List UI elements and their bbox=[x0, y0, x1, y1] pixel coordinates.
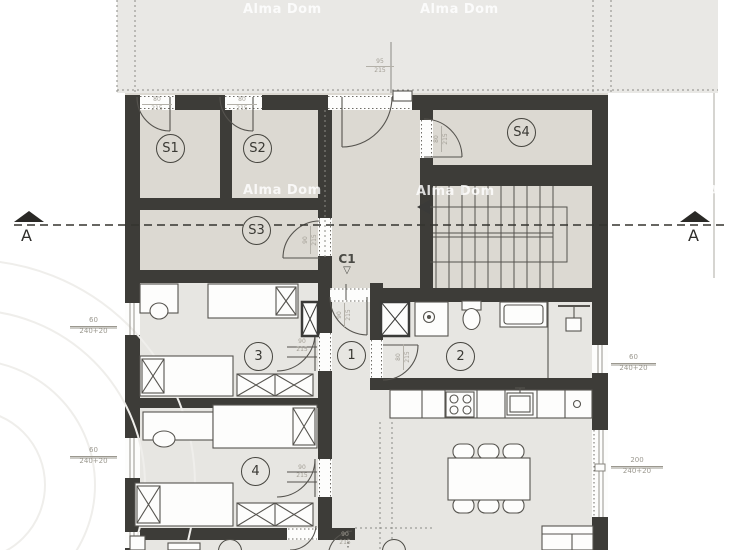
door-swings bbox=[137, 97, 462, 550]
dimension-left-lower: 60 240+20 bbox=[70, 446, 117, 466]
door-label-bottom-height: 215 bbox=[332, 539, 358, 547]
stair-walk-line bbox=[430, 207, 567, 262]
dimension-left-lower-size: 60 bbox=[70, 446, 117, 457]
room-label-1: 1 bbox=[337, 341, 366, 370]
door-label-s4-width: 80 bbox=[433, 126, 442, 152]
shaft-bath bbox=[381, 302, 409, 336]
watermark-mid-right: Alma Dom bbox=[416, 184, 495, 199]
wardrobe-room4 bbox=[237, 503, 313, 526]
desk-room4 bbox=[143, 412, 213, 447]
bathroom-sink bbox=[500, 302, 547, 327]
stove bbox=[446, 392, 474, 417]
room-label-3: 3 bbox=[244, 342, 273, 371]
room-label-2-text: 2 bbox=[456, 349, 464, 364]
dining-table bbox=[448, 458, 530, 500]
door-label-s2-width: 80 bbox=[227, 96, 257, 105]
door-label-room4: 90 215 bbox=[288, 464, 316, 480]
door-label-s4: 80 215 bbox=[433, 126, 450, 152]
section-triangle-left bbox=[14, 211, 44, 222]
door-label-entry: 95 215 bbox=[366, 58, 394, 75]
door-label-room4-height: 215 bbox=[288, 472, 316, 480]
room-label-s3-text: S3 bbox=[248, 223, 265, 238]
door-label-s1: 80 215 bbox=[142, 96, 172, 113]
kitchen-counter bbox=[390, 390, 592, 418]
door-label-bottom-width: 90 bbox=[332, 531, 358, 539]
c1-label: C1 bbox=[338, 252, 355, 266]
room-label-s4-text: S4 bbox=[513, 125, 530, 140]
door-label-s3-height: 215 bbox=[311, 226, 319, 254]
dimension-left-upper-size: 60 bbox=[70, 316, 117, 327]
bed-room4-left bbox=[135, 483, 233, 526]
room-label-s3: S3 bbox=[242, 216, 271, 245]
room-label-s1: S1 bbox=[156, 134, 185, 163]
toilet bbox=[462, 301, 481, 330]
door-label-hall-width: 90 bbox=[336, 303, 345, 327]
room-label-2: 2 bbox=[446, 342, 475, 371]
shaft-left bbox=[302, 302, 318, 336]
door-label-hall-height: 215 bbox=[345, 303, 353, 327]
door-label-room3-height: 215 bbox=[288, 346, 316, 354]
door-label-room3: 90 215 bbox=[288, 338, 316, 354]
furniture bbox=[130, 91, 593, 550]
desk-room3 bbox=[140, 284, 178, 319]
watermark-top-left: Alma Dom bbox=[243, 2, 322, 17]
door-label-bath: 80 215 bbox=[395, 344, 412, 370]
dimension-left-upper: 60 240+20 bbox=[70, 316, 117, 336]
room-label-4: 4 bbox=[241, 457, 270, 486]
stair-direction-arrow bbox=[417, 200, 430, 214]
door-label-bottom: 90 215 bbox=[332, 531, 358, 547]
section-label-right: A bbox=[688, 226, 699, 245]
watermark-edge-right: Alma Dom bbox=[708, 184, 740, 199]
room-label-s1-text: S1 bbox=[162, 141, 179, 156]
door-label-entry-height: 215 bbox=[366, 67, 394, 75]
room-label-s2-text: S2 bbox=[249, 141, 266, 156]
watermark-top-right: Alma Dom bbox=[420, 2, 499, 17]
door-label-s2: 80 215 bbox=[227, 96, 257, 113]
door-label-s1-width: 80 bbox=[142, 96, 172, 105]
door-bottom-1 bbox=[290, 526, 316, 550]
floor-plan-page: S1 S2 S3 S4 1 2 3 4 80 215 80 215 95 215… bbox=[0, 0, 740, 550]
water-heater bbox=[558, 306, 590, 331]
door-label-room3-width: 90 bbox=[288, 338, 316, 346]
door-label-room4-width: 90 bbox=[288, 464, 316, 472]
dimension-right-lower: 200 240+20 bbox=[611, 456, 663, 476]
section-triangle-right bbox=[680, 211, 710, 222]
dimension-left-upper-detail: 240+20 bbox=[70, 327, 117, 336]
point-marker-c1: C1 ▽ bbox=[334, 253, 360, 276]
door-entry bbox=[342, 97, 392, 147]
door-label-bath-height: 215 bbox=[404, 344, 412, 370]
room-label-s4: S4 bbox=[507, 118, 536, 147]
room-label-3-text: 3 bbox=[254, 349, 262, 364]
bed-room3-left bbox=[140, 356, 233, 396]
room-label-1-text: 1 bbox=[347, 348, 355, 363]
watermark-mid-left: Alma Dom bbox=[243, 183, 322, 198]
entry-sidelight bbox=[393, 91, 412, 101]
dimension-right-upper: 60 240+20 bbox=[611, 353, 656, 373]
door-label-hall: 90 215 bbox=[336, 303, 353, 327]
door-label-s1-height: 215 bbox=[142, 105, 172, 113]
wardrobe-room3 bbox=[237, 374, 313, 396]
washing-machine bbox=[415, 302, 448, 336]
sofa bbox=[542, 526, 593, 550]
dimension-right-upper-detail: 240+20 bbox=[611, 364, 656, 373]
door-label-bath-width: 80 bbox=[395, 344, 404, 370]
door-label-s4-height: 215 bbox=[442, 126, 450, 152]
room-label-4-text: 4 bbox=[251, 464, 259, 479]
staircase bbox=[430, 186, 567, 288]
dimension-right-upper-size: 60 bbox=[611, 353, 656, 364]
bed-room4-top bbox=[213, 405, 317, 448]
dimension-right-lower-detail: 240+20 bbox=[611, 467, 663, 476]
dimension-left-lower-detail: 240+20 bbox=[70, 457, 117, 466]
door-label-entry-width: 95 bbox=[366, 58, 394, 67]
room-label-s2: S2 bbox=[243, 134, 272, 163]
door-label-s3: 90 215 bbox=[302, 226, 319, 254]
door-label-s3-width: 90 bbox=[302, 226, 311, 254]
door-label-s2-height: 215 bbox=[227, 105, 257, 113]
bed-room3-top bbox=[208, 284, 298, 318]
dimension-right-lower-size: 200 bbox=[611, 456, 663, 467]
section-label-left: A bbox=[21, 226, 32, 245]
c1-triangle-icon: ▽ bbox=[334, 266, 360, 277]
